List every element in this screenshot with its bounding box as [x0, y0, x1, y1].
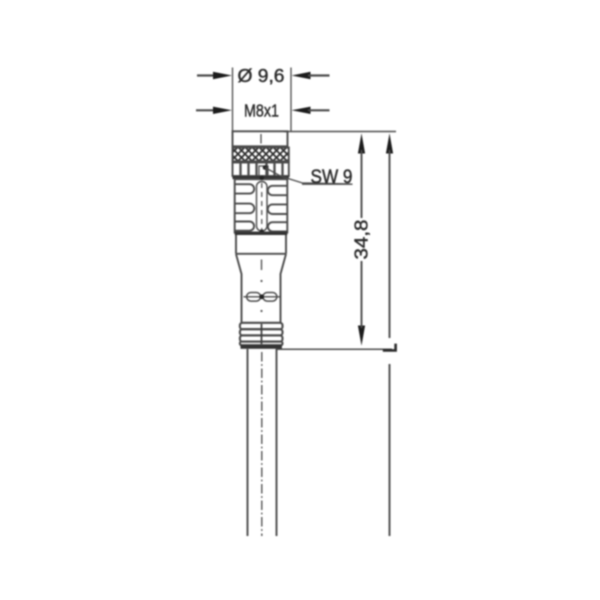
svg-text:34,8: 34,8 — [351, 220, 371, 260]
svg-text:M8x1: M8x1 — [244, 101, 279, 121]
svg-text:Ø 9,6: Ø 9,6 — [238, 65, 285, 86]
